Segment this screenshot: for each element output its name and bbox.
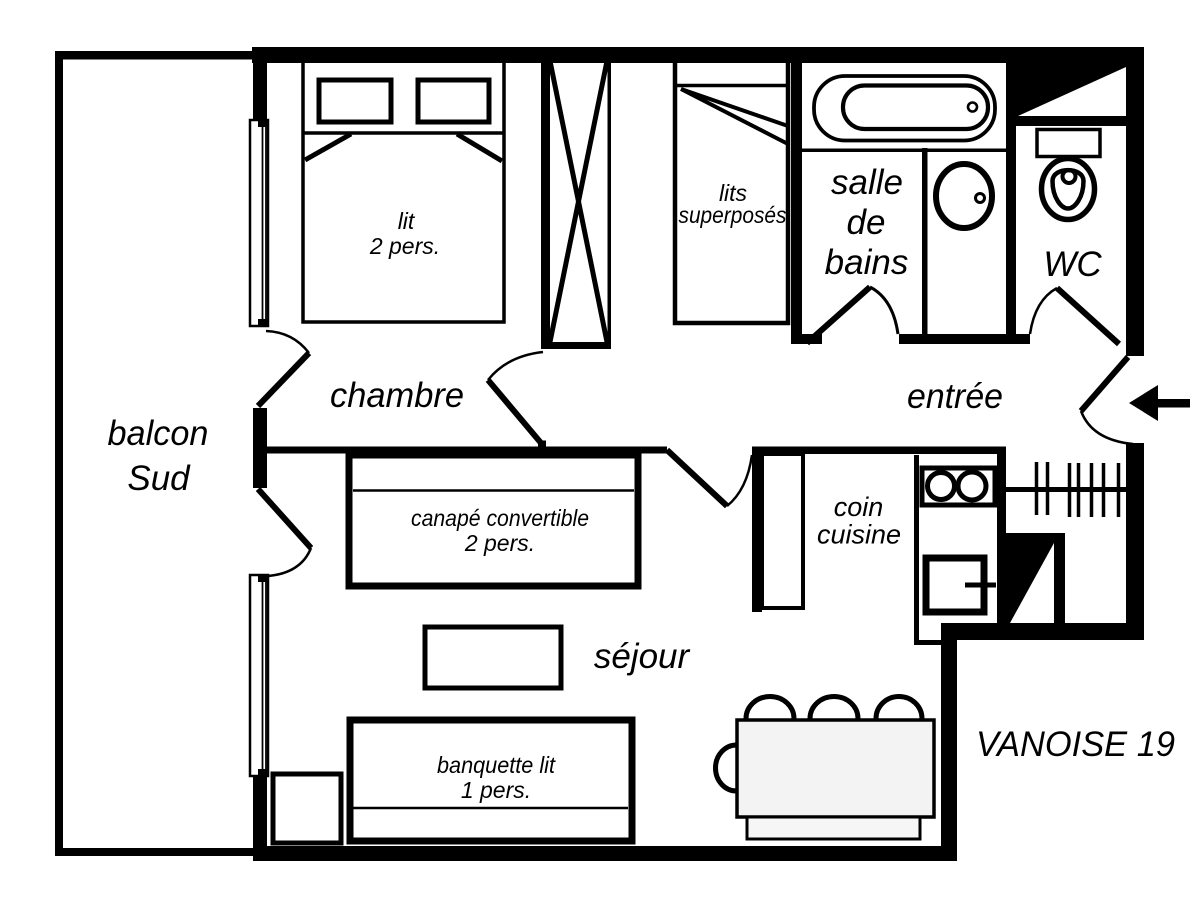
svg-text:de: de <box>847 203 886 242</box>
svg-text:WC: WC <box>1043 245 1102 284</box>
svg-text:lit: lit <box>398 208 416 234</box>
svg-text:VANOISE 19: VANOISE 19 <box>976 725 1175 764</box>
svg-text:salle: salle <box>831 163 903 202</box>
svg-text:coin: coin <box>834 492 884 522</box>
svg-text:2 pers.: 2 pers. <box>369 233 440 259</box>
svg-text:séjour: séjour <box>594 637 691 676</box>
svg-text:banquette lit: banquette lit <box>437 752 557 778</box>
svg-text:entrée: entrée <box>907 377 1003 416</box>
svg-text:chambre: chambre <box>330 376 464 415</box>
svg-text:balcon: balcon <box>108 414 209 453</box>
svg-text:bains: bains <box>825 243 909 282</box>
svg-text:Sud: Sud <box>127 459 191 498</box>
svg-text:cuisine: cuisine <box>817 520 901 550</box>
svg-text:2 pers.: 2 pers. <box>464 530 535 556</box>
svg-text:superposés: superposés <box>679 202 787 228</box>
svg-text:1 pers.: 1 pers. <box>461 777 531 803</box>
svg-text:canapé convertible: canapé convertible <box>411 505 589 531</box>
